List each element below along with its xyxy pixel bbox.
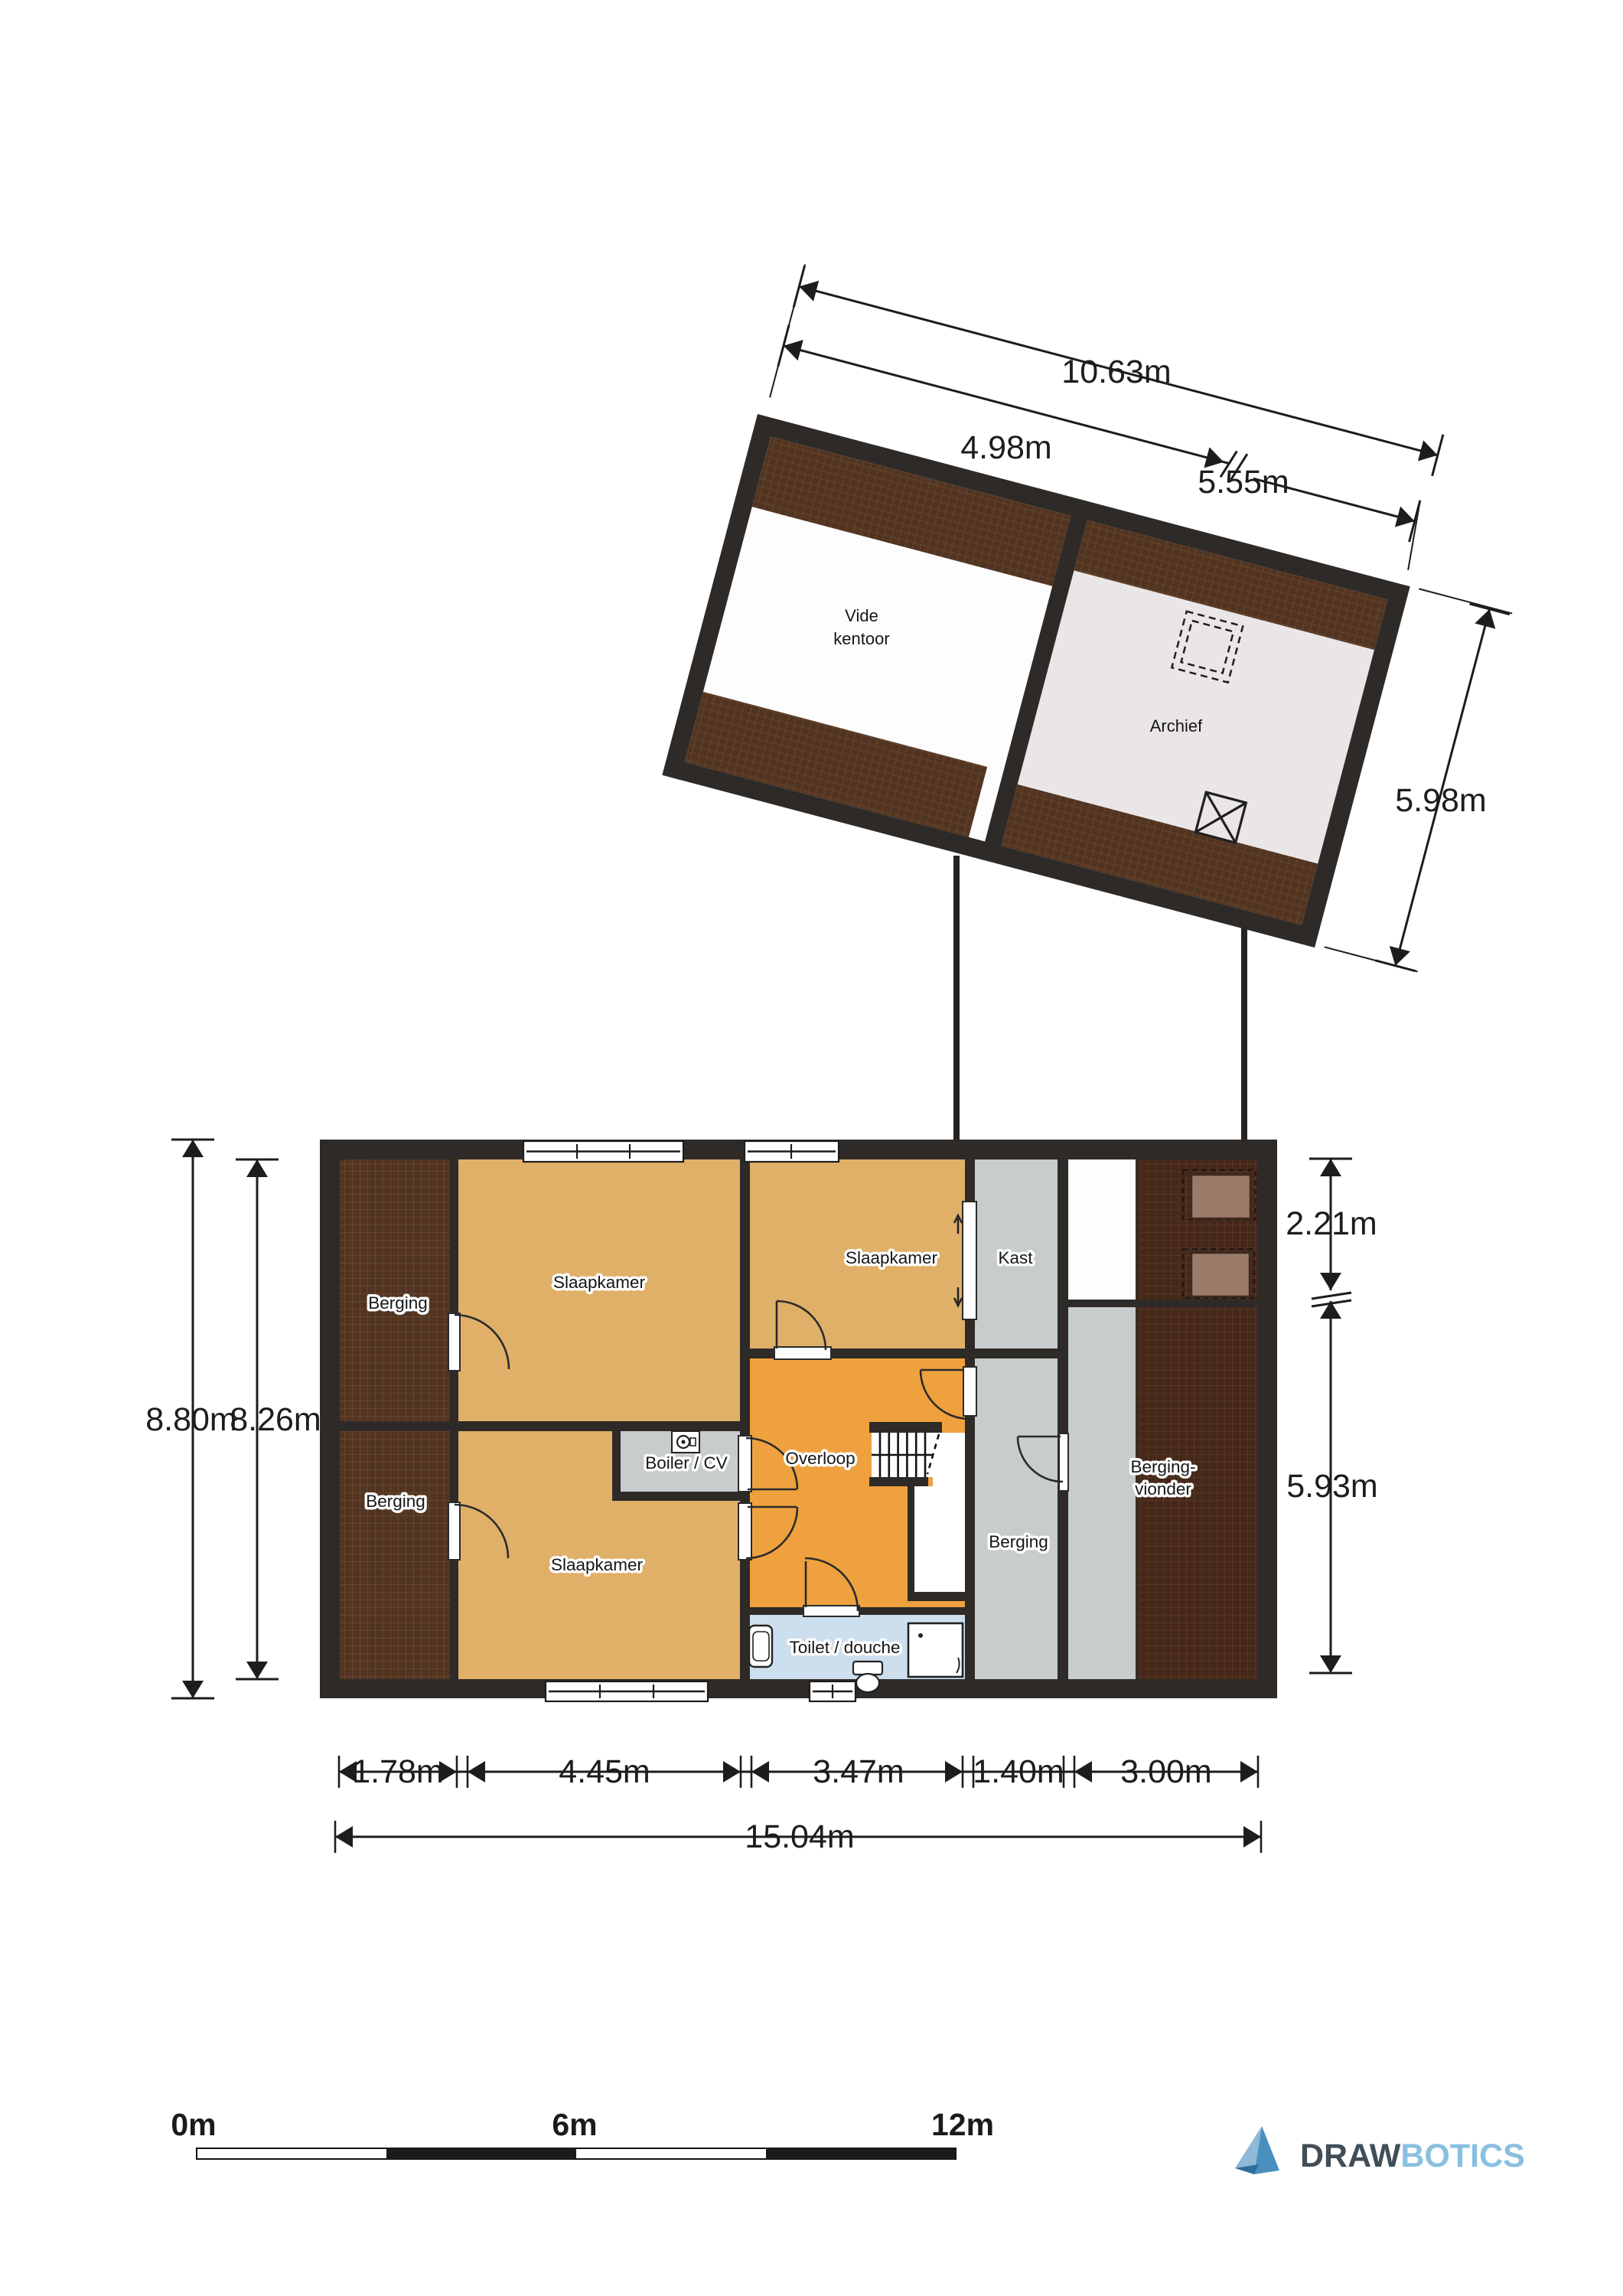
svg-text:Berging: Berging — [989, 1532, 1048, 1551]
svg-text:Slaapkamer: Slaapkamer — [551, 1555, 644, 1574]
svg-text:1.78m: 1.78m — [352, 1753, 444, 1790]
svg-text:10.63m: 10.63m — [1061, 354, 1171, 390]
svg-text:3.00m: 3.00m — [1120, 1753, 1212, 1790]
svg-text:12m: 12m — [931, 2107, 994, 2142]
svg-text:Toilet / douche: Toilet / douche — [789, 1638, 900, 1657]
svg-text:4.98m: 4.98m — [960, 429, 1052, 466]
svg-text:Overloop: Overloop — [785, 1449, 855, 1468]
svg-text:6m: 6m — [552, 2107, 597, 2142]
svg-text:kentoor: kentoor — [833, 629, 889, 648]
svg-text:Berging-: Berging- — [1130, 1457, 1195, 1476]
svg-text:vionder: vionder — [1135, 1479, 1191, 1499]
svg-text:8.80m: 8.80m — [145, 1401, 237, 1438]
svg-text:5.98m: 5.98m — [1395, 782, 1487, 819]
svg-text:Slaapkamer: Slaapkamer — [553, 1273, 646, 1292]
svg-text:8.26m: 8.26m — [230, 1401, 321, 1438]
svg-text:Slaapkamer: Slaapkamer — [846, 1248, 938, 1267]
svg-text:Archief: Archief — [1150, 716, 1203, 735]
svg-text:DRAWBOTICS: DRAWBOTICS — [1300, 2138, 1525, 2174]
svg-text:4.45m: 4.45m — [559, 1753, 650, 1790]
svg-text:0m: 0m — [171, 2107, 216, 2142]
svg-text:5.93m: 5.93m — [1286, 1468, 1378, 1505]
svg-text:Vide: Vide — [845, 606, 878, 625]
svg-text:3.47m: 3.47m — [813, 1753, 904, 1790]
svg-text:2.21m: 2.21m — [1286, 1205, 1377, 1242]
svg-text:15.04m: 15.04m — [745, 1818, 854, 1855]
svg-text:Berging: Berging — [368, 1293, 428, 1313]
svg-text:5.55m: 5.55m — [1198, 464, 1289, 501]
svg-text:1.40m: 1.40m — [973, 1753, 1064, 1790]
svg-text:Kast: Kast — [998, 1248, 1033, 1267]
svg-text:Berging: Berging — [366, 1492, 425, 1511]
svg-text:Boiler / CV: Boiler / CV — [645, 1453, 728, 1473]
